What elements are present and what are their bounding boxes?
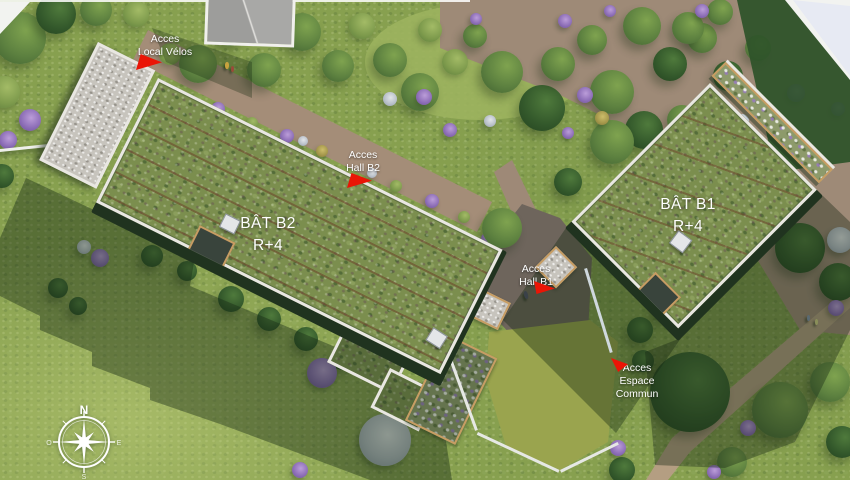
marker-line: Acces	[138, 33, 192, 46]
compass-west-label: O	[46, 440, 52, 447]
person-figure	[231, 66, 234, 72]
site-plan-render: BÂT B2 R+4 BÂT B1 R+4 Acces Local Vélos …	[0, 0, 850, 480]
neighbor-roof-pitched	[204, 0, 296, 48]
compass-star	[59, 419, 109, 465]
access-marker-hall-b2: Acces Hall B2	[346, 149, 380, 175]
compass-east-label: E	[117, 440, 122, 447]
building-b1-level: R+4	[660, 216, 716, 238]
neighbor-roof-corner-west	[0, 2, 30, 34]
skylight	[219, 213, 241, 234]
person-figure	[225, 62, 229, 69]
marker-line: Hall B2	[346, 162, 380, 175]
person-figure	[807, 315, 810, 321]
marker-line: Acces	[519, 263, 553, 276]
compass-south-label: S	[82, 474, 87, 480]
building-b1-label: BÂT B1 R+4	[660, 194, 716, 239]
building-b1-name: BÂT B1	[660, 194, 716, 216]
building-b2-label: BÂT B2 R+4	[240, 213, 296, 258]
person-figure	[815, 319, 818, 325]
access-marker-local-velos: Acces Local Vélos	[138, 33, 192, 59]
compass-rose: N O E S	[45, 402, 123, 480]
marker-line: Espace	[616, 375, 659, 388]
marker-line: Commun	[616, 388, 659, 401]
building-b2-name: BÂT B2	[240, 213, 296, 235]
skylight	[425, 327, 447, 349]
marker-line: Acces	[346, 149, 380, 162]
building-b2-level: R+4	[240, 235, 296, 257]
compass-north-label: N	[80, 403, 89, 417]
